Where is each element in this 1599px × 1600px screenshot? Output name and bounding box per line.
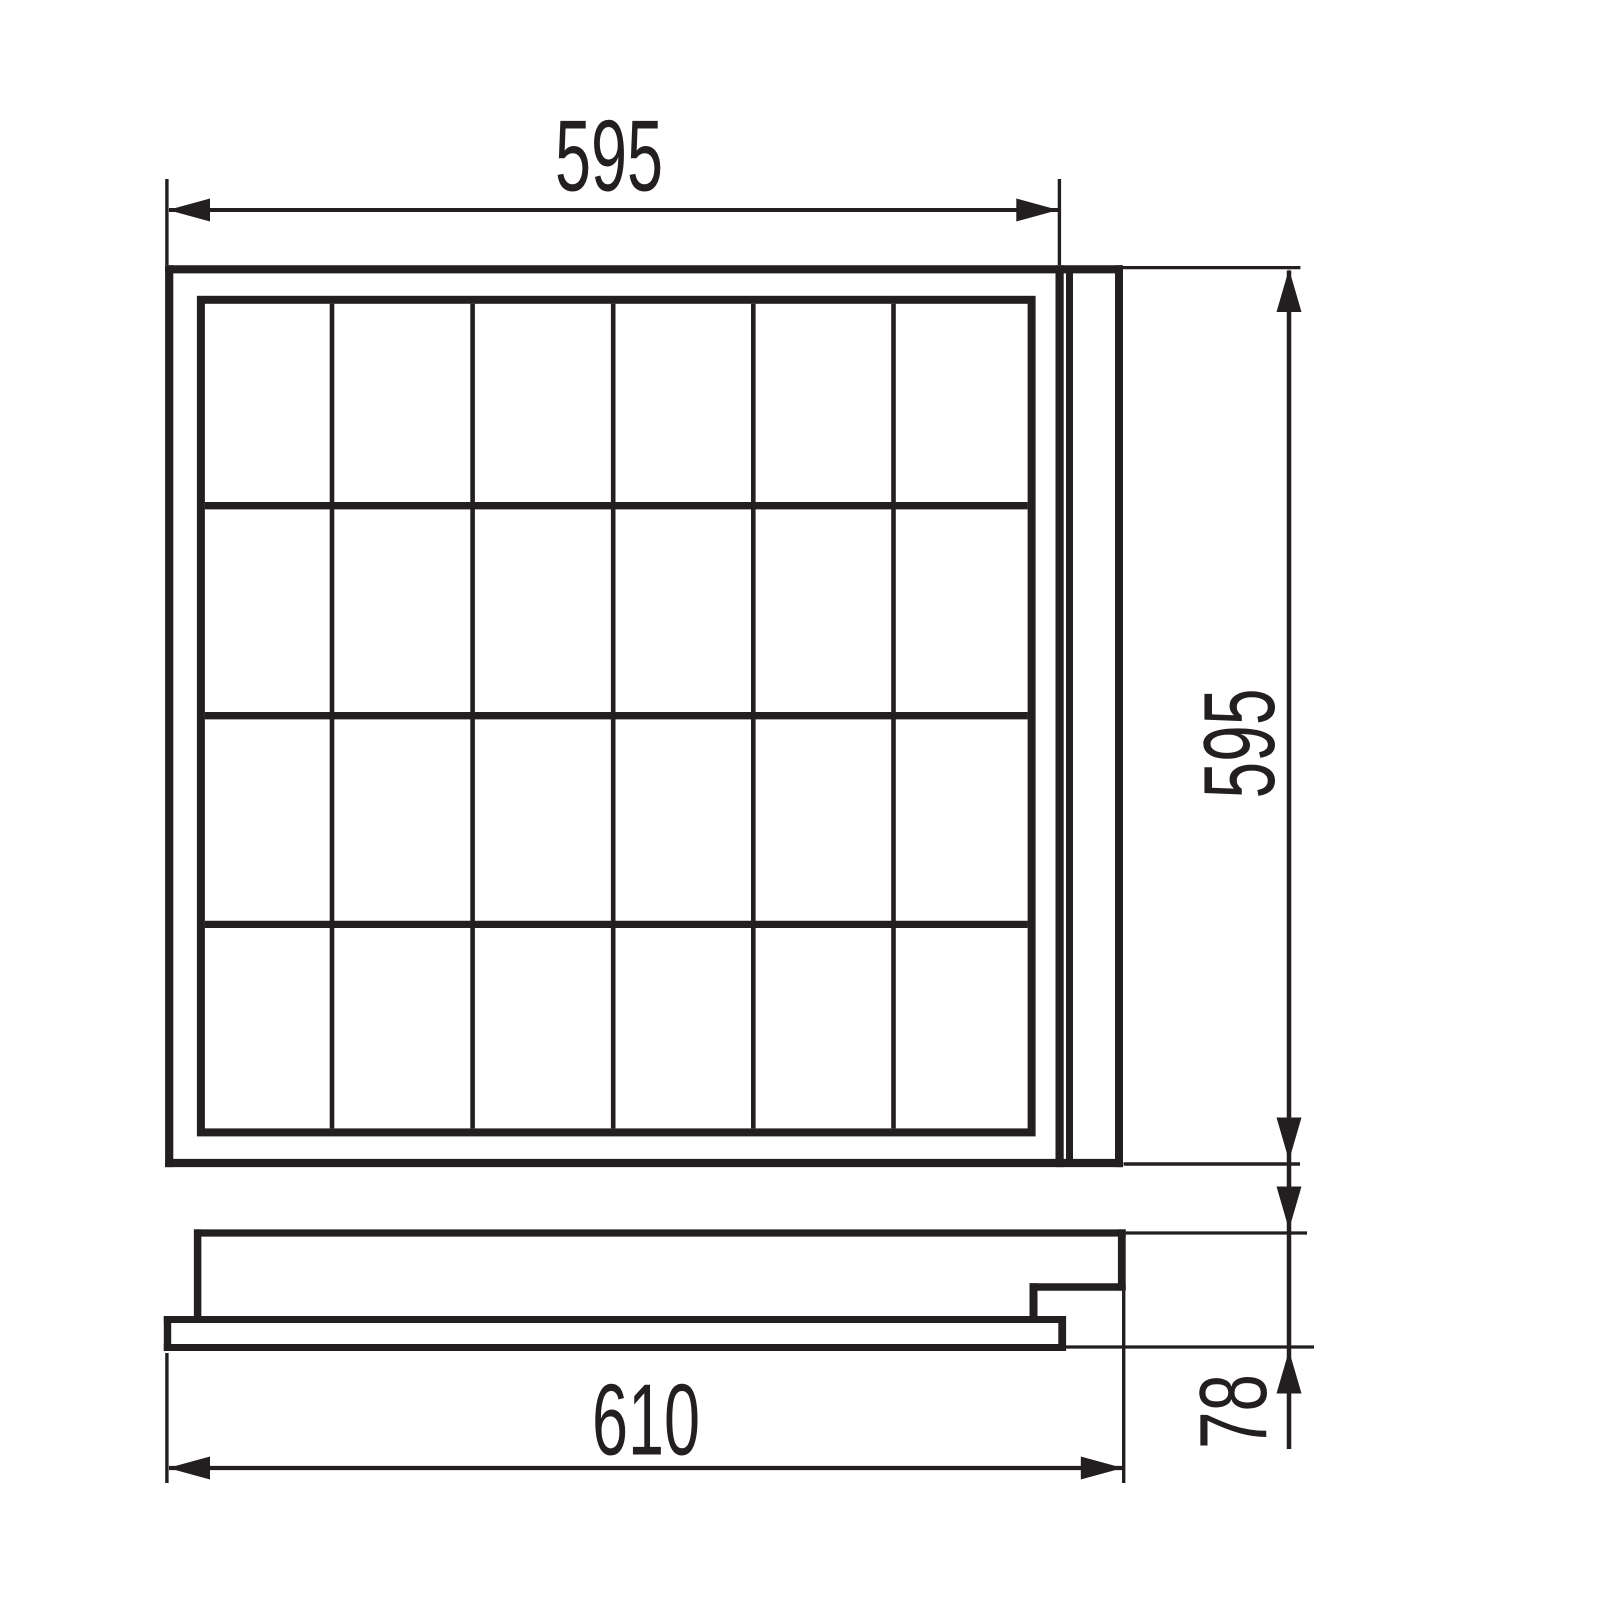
svg-text:78: 78	[1180, 1374, 1287, 1449]
svg-text:595: 595	[555, 101, 663, 213]
svg-text:595: 595	[1184, 689, 1296, 799]
svg-text:610: 610	[592, 1365, 700, 1477]
